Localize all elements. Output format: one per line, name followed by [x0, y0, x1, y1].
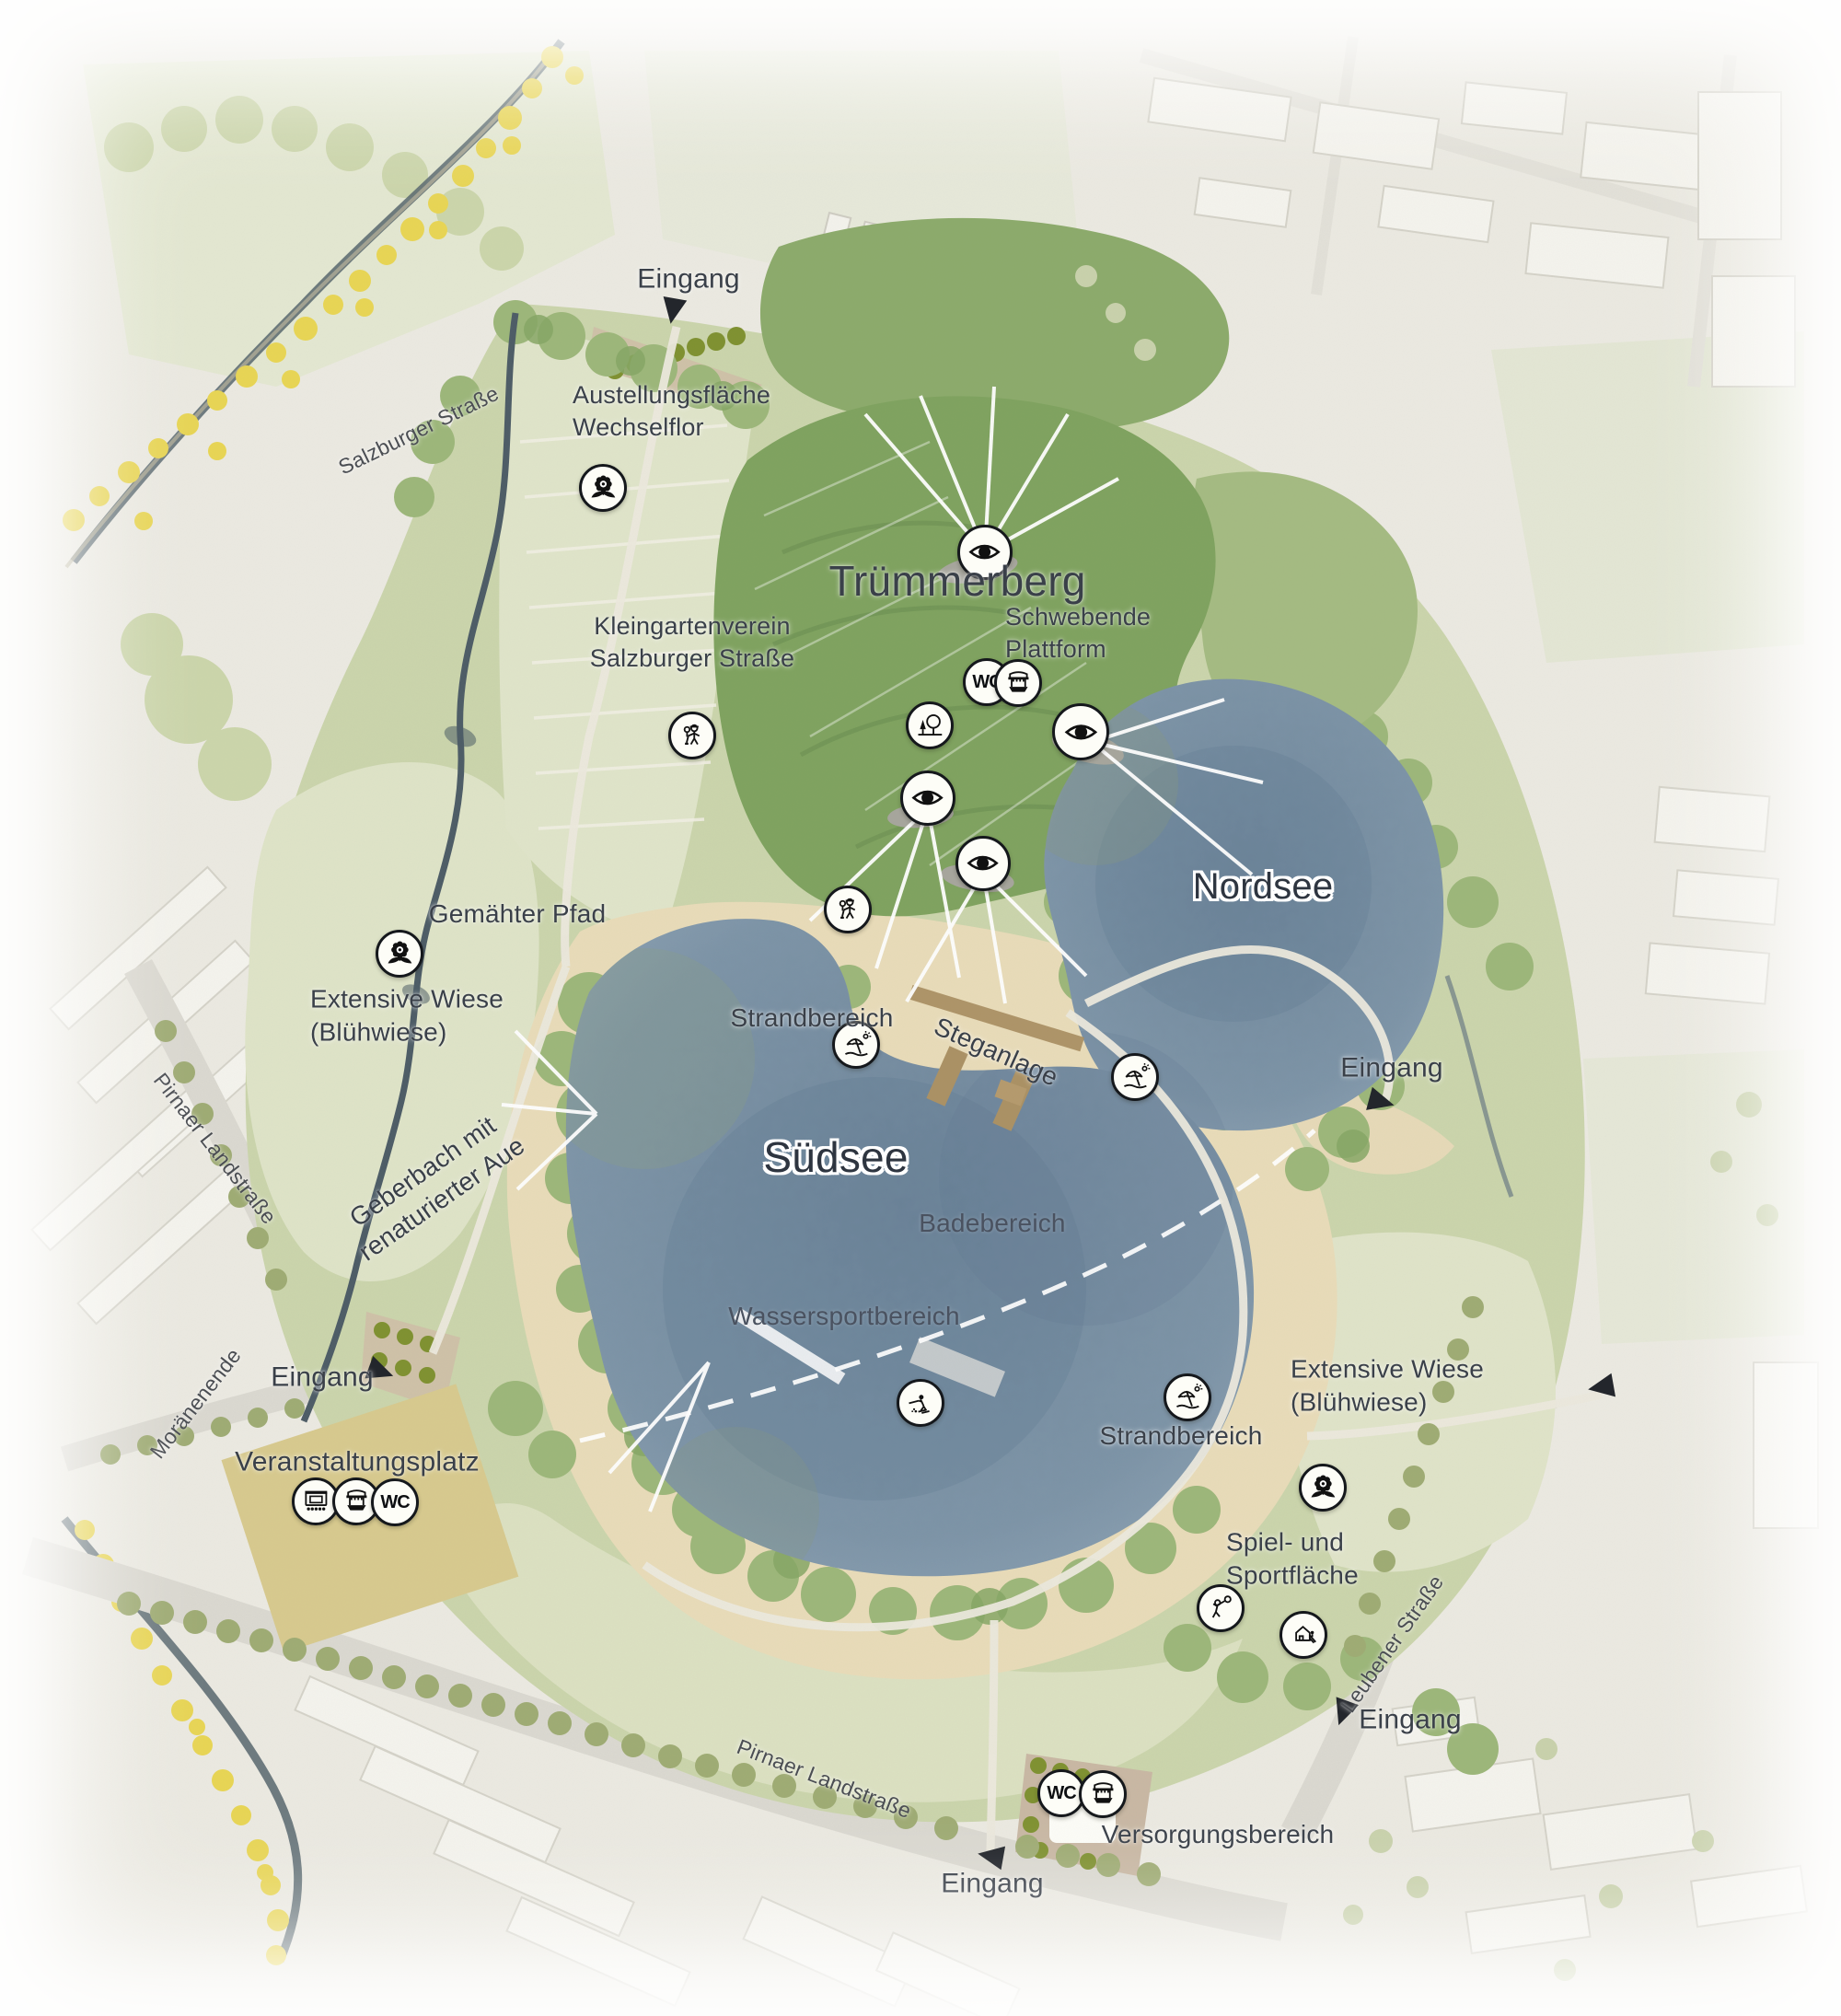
- label-moraenenende: Moränenende: [145, 1343, 248, 1465]
- label-eingang-top: Eingang: [637, 261, 740, 297]
- label-pirnaer-landstrasse-west: Pirnaer Landstraße: [147, 1068, 283, 1230]
- label-kleingartenverein: Kleingartenverein Salzburger Straße: [590, 610, 795, 675]
- label-pirnaer-landstrasse-sued: Pirnaer Landstraße: [733, 1733, 915, 1825]
- label-wassersportbereich: Wassersportbereich: [728, 1300, 960, 1333]
- label-eingang-nordsee: Eingang: [1340, 1050, 1443, 1086]
- map-canvas: WCWCWC EingangSalzburger StraßeAustellun…: [0, 0, 1841, 2016]
- label-suedsee: Südsee: [763, 1130, 908, 1186]
- label-schwebende-plattform: Schwebende Plattform: [1005, 601, 1151, 666]
- label-salzburger-strasse: Salzburger Straße: [334, 380, 504, 481]
- label-spiel-und-sportflaeche: Spiel- und Sportfläche: [1226, 1526, 1359, 1593]
- label-strandbereich-nord: Strandbereich: [731, 1002, 894, 1035]
- label-veranstaltungsplatz: Veranstaltungsplatz: [235, 1444, 480, 1480]
- label-badebereich: Badebereich: [919, 1207, 1065, 1240]
- label-gemaehter-pfad: Gemähter Pfad: [429, 898, 606, 931]
- label-nordsee: Nordsee: [1193, 863, 1334, 910]
- label-eingang-sued: Eingang: [941, 1866, 1044, 1902]
- label-austellungsflaeche-wechselflor: Austellungsfläche Wechselflor: [573, 379, 770, 444]
- label-extensive-wiese-west: Extensive Wiese (Blühwiese): [310, 983, 504, 1050]
- label-versorgungsbereich: Versorgungsbereich: [1102, 1818, 1335, 1851]
- label-eingang-leubener: Eingang: [1359, 1702, 1462, 1738]
- label-steganlage: Steganlage: [929, 1010, 1063, 1095]
- label-geberbach: Geberbach mit renaturierter Aue: [333, 1102, 531, 1269]
- label-eingang-west: Eingang: [271, 1360, 374, 1396]
- map-labels-layer: EingangSalzburger StraßeAustellungsfläch…: [0, 0, 1841, 2016]
- label-extensive-wiese-ost: Extensive Wiese (Blühwiese): [1291, 1353, 1484, 1420]
- label-strandbereich-ost: Strandbereich: [1100, 1419, 1263, 1453]
